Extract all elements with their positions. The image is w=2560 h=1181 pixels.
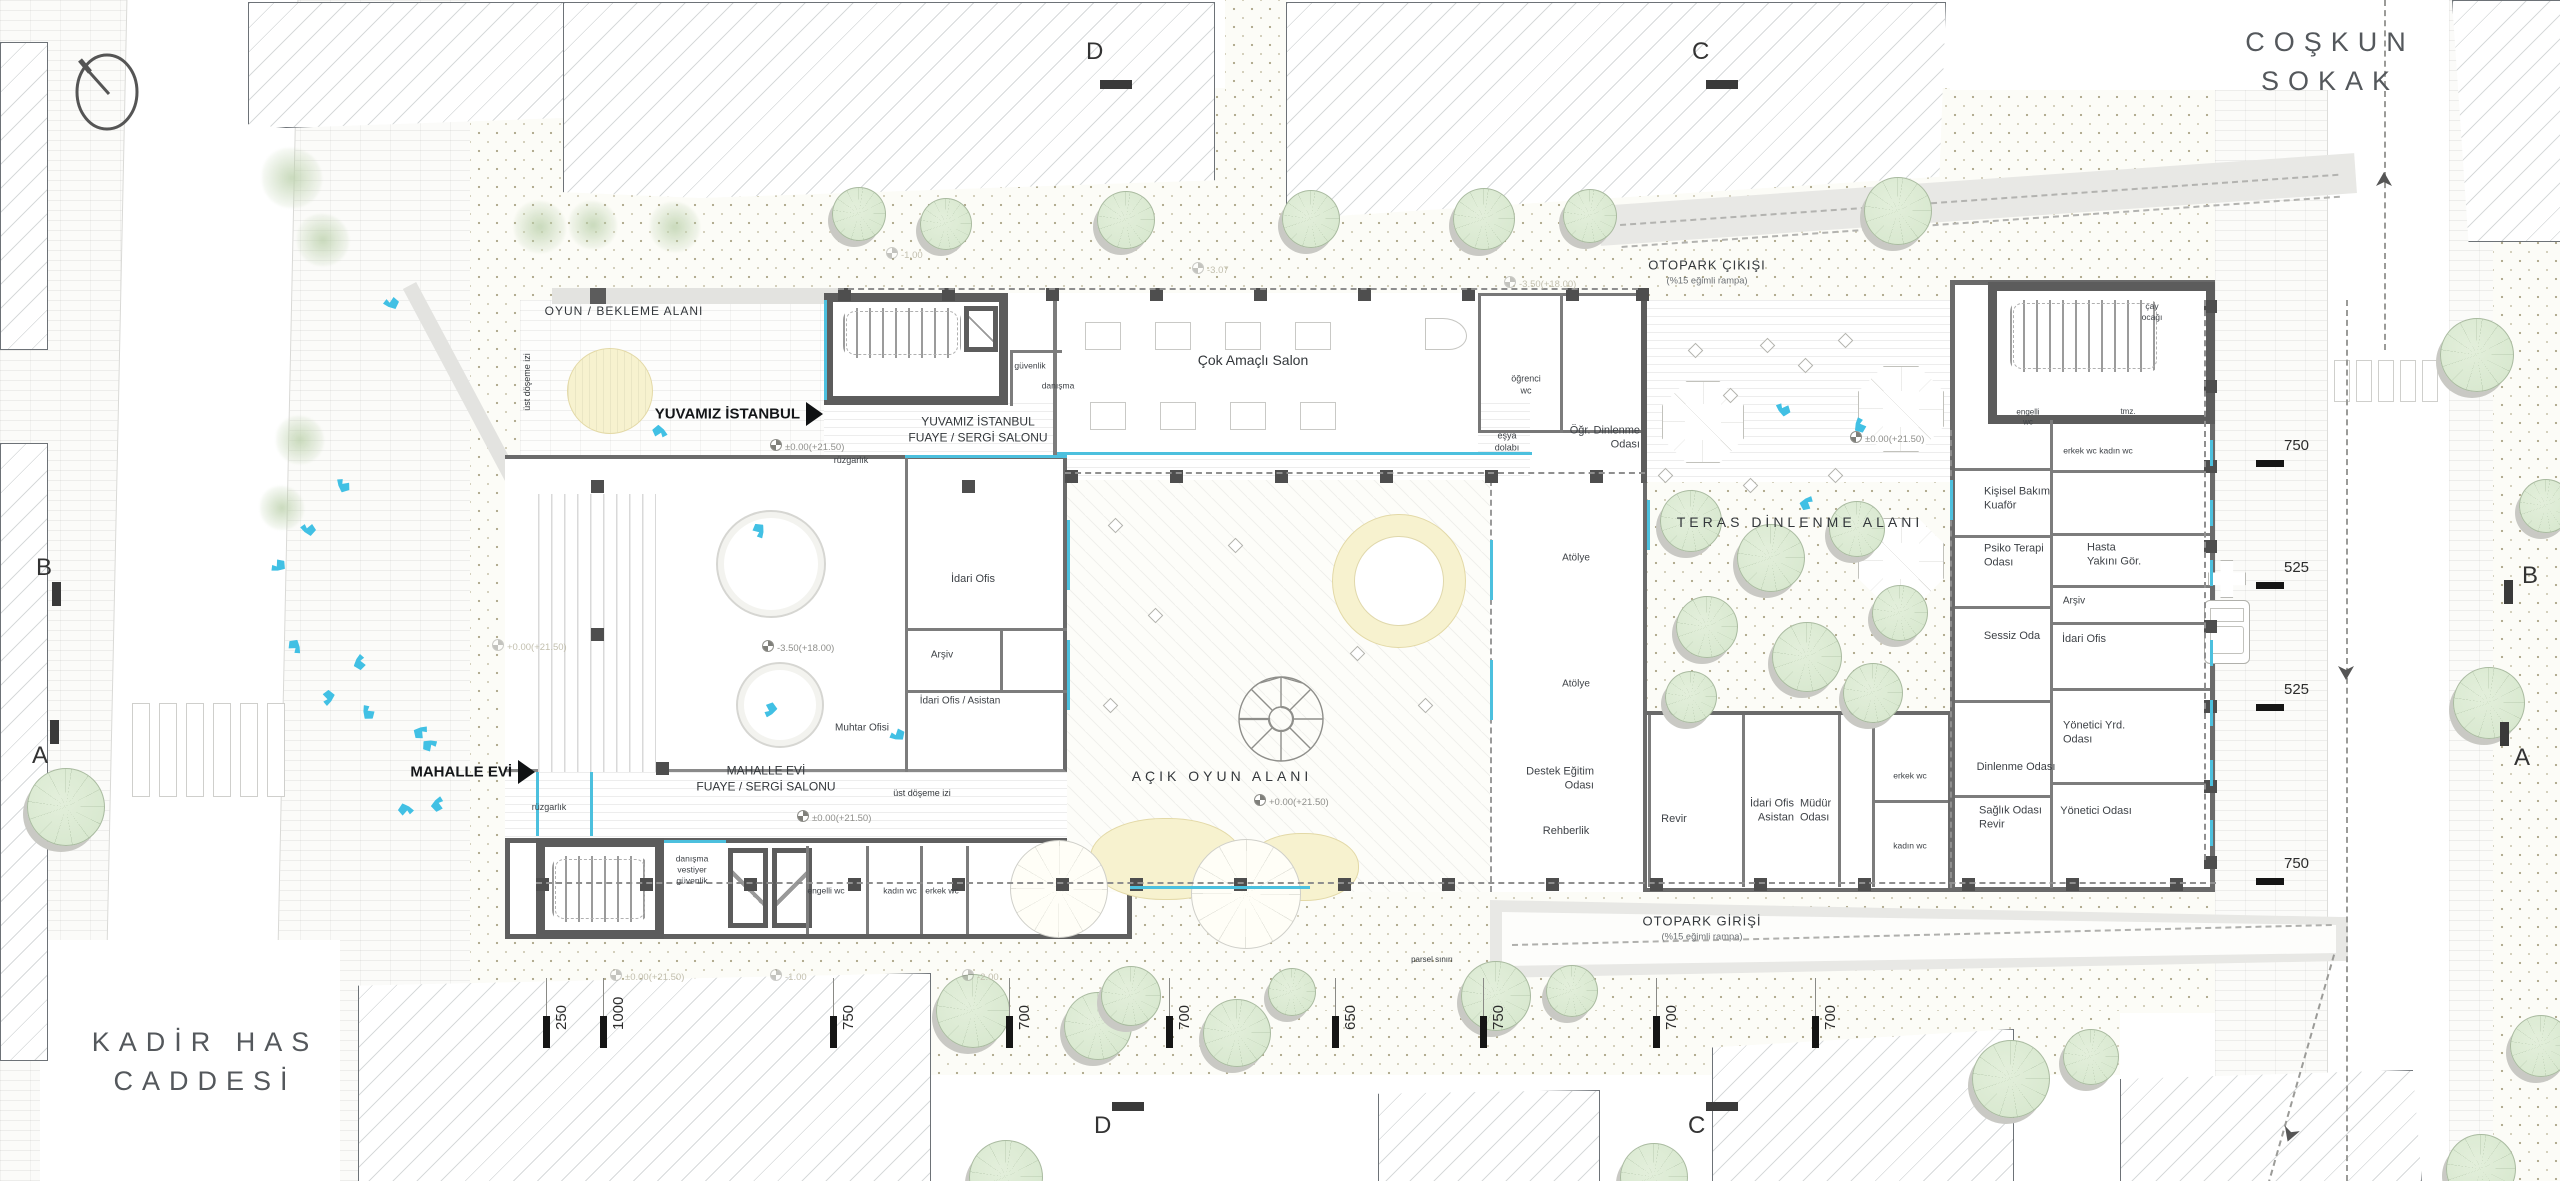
section-marker-bar xyxy=(1112,1102,1144,1111)
room-label: Revir xyxy=(1661,812,1687,826)
room-label: eşyadolabı xyxy=(1495,430,1520,453)
room-label: kadın wc xyxy=(2099,445,2133,456)
section-marker-bar xyxy=(52,582,61,606)
dimension-value: 750 xyxy=(840,1005,857,1030)
room-label: İdari Ofis / Asistan xyxy=(920,695,1001,708)
dimension-bar xyxy=(1332,1016,1339,1048)
elevation-mark: -2.00 xyxy=(962,969,999,983)
room-label: Arşiv xyxy=(2063,595,2085,608)
area-label: YUVAMIZ İSTANBULFUAYE / SERGİ SALONU xyxy=(908,414,1047,445)
room-label: erkek wc xyxy=(1893,770,1927,781)
dimension-value: 1000 xyxy=(610,997,627,1030)
dimension-value: 700 xyxy=(1016,1005,1033,1030)
elevation-mark: -3.50(+18.00) xyxy=(762,640,834,654)
section-marker-bar xyxy=(1706,1102,1738,1111)
dimension-bar xyxy=(2256,582,2284,589)
area-label: üst döşeme izi xyxy=(893,788,951,800)
dimension-bar xyxy=(1006,1016,1013,1048)
section-marker-d: D xyxy=(1094,1112,1111,1140)
section-marker-a: A xyxy=(2514,744,2530,772)
area-label: MAHALLE EVİFUAYE / SERGİ SALONU xyxy=(696,763,835,794)
room-label: danışma xyxy=(1042,380,1075,391)
room-label: Destek EğitimOdası xyxy=(1526,765,1594,794)
dimension-bar xyxy=(2256,878,2284,885)
room-label: çayocağı xyxy=(2142,301,2163,323)
dimension-value: 250 xyxy=(553,1005,570,1030)
dimension-bar xyxy=(2256,460,2284,467)
dimension-tick xyxy=(603,978,604,1016)
dimension-bar xyxy=(1480,1016,1487,1048)
area-label: parsel sınırı xyxy=(1411,955,1453,965)
room-label: rüzgarlık xyxy=(834,455,869,467)
dimension-tick xyxy=(1009,978,1010,1016)
dimension-value: 525 xyxy=(2284,559,2309,576)
area-label: üst döşeme izi xyxy=(522,353,534,411)
dimension-tick xyxy=(1169,978,1170,1016)
room-label: MüdürOdası xyxy=(1800,797,1831,826)
dimension-bar xyxy=(2256,704,2284,711)
dimension-value: 750 xyxy=(2284,437,2309,454)
entrance-label: MAHALLE EVİ xyxy=(410,762,512,782)
elevation-mark: +0.00(+21.50) xyxy=(1254,794,1329,808)
section-marker-c: C xyxy=(1692,38,1709,66)
dimension-bar xyxy=(1812,1016,1819,1048)
dimension-value: 700 xyxy=(1176,1005,1193,1030)
dimension-tick xyxy=(833,978,834,1016)
dimension-tick xyxy=(1656,978,1657,1016)
room-label: kadın wc xyxy=(1893,840,1927,851)
dimension-tick xyxy=(1335,978,1336,1016)
dimension-value: 750 xyxy=(1490,1005,1507,1030)
room-label: erkek wc xyxy=(2063,445,2097,456)
room-label: Muhtar Ofisi xyxy=(835,722,889,735)
elevation-mark: ±0.00(+21.50) xyxy=(770,439,844,453)
room-label: erkek wc xyxy=(925,885,959,896)
room-label: engelli wc xyxy=(807,885,844,896)
dimension-tick xyxy=(1483,978,1484,1016)
dimension-value: 700 xyxy=(1663,1005,1680,1030)
room-label: Arşiv xyxy=(931,649,953,662)
dimension-value: 750 xyxy=(2284,855,2309,872)
room-label: kadın wc xyxy=(883,885,917,896)
room-label: öğrenciwc xyxy=(1511,373,1541,396)
room-label: danışmavestiyergüvenlik xyxy=(676,853,709,886)
room-label: Öğr. DinlenmeOdası xyxy=(1570,424,1640,453)
elevation-mark: ±0.00(+21.50) xyxy=(1850,431,1924,445)
area-label: OTOPARK ÇIKIŞI(%15 eğimli rampa) xyxy=(1648,257,1766,286)
room-label: Yönetici Odası xyxy=(2060,804,2132,818)
room-label: İdari Ofis xyxy=(951,572,995,586)
room-label: güvenlik xyxy=(1014,360,1045,371)
room-label: Psiko TerapiOdası xyxy=(1984,542,2044,571)
dimension-bar xyxy=(1653,1016,1660,1048)
room-label: Sessiz Oda xyxy=(1984,629,2040,643)
elevation-mark: ±0.00(+21.50) xyxy=(797,810,871,824)
room-label: engelliwc xyxy=(2016,408,2039,429)
room-label: İdari OfisAsistan xyxy=(1750,797,1794,826)
dimension-tick xyxy=(1815,978,1816,1016)
dimension-value: 525 xyxy=(2284,681,2309,698)
section-marker-bar xyxy=(1706,80,1738,89)
area-label: OTOPARK GİRİŞİ(%15 eğimli rampa) xyxy=(1643,913,1762,942)
elevation-mark: -1.00 xyxy=(770,969,807,983)
room-label: Sağlık OdasıRevir xyxy=(1979,804,2042,833)
dimension-bar xyxy=(543,1016,550,1048)
room-label: rüzgarlık xyxy=(532,802,567,814)
room-label: Kişisel BakımKuaför xyxy=(1984,485,2050,514)
elevation-mark: +0.00(+21.50) xyxy=(492,639,567,653)
section-marker-bar xyxy=(2500,722,2509,746)
entrance-arrow-icon xyxy=(518,760,535,784)
dimension-bar xyxy=(1166,1016,1173,1048)
label-layer: OYUN / BEKLEME ALANITERAS DİNLENME ALANI… xyxy=(0,0,2560,1181)
room-label: İdari Ofis xyxy=(2062,632,2106,646)
elevation-mark: ±0.00(+21.50) xyxy=(610,969,684,983)
room-label: Rehberlik xyxy=(1543,824,1589,838)
site-plan: OYUN / BEKLEME ALANITERAS DİNLENME ALANI… xyxy=(0,0,2560,1181)
elevation-mark: -3.07 xyxy=(1192,262,1229,276)
entrance-label: YUVAMIZ İSTANBUL xyxy=(655,404,800,424)
section-marker-bar xyxy=(50,720,59,744)
elevation-mark: -3.50(+18.00) xyxy=(1504,276,1576,290)
room-label: Yönetici Yrd.Odası xyxy=(2063,719,2125,748)
section-marker-b: B xyxy=(2522,562,2538,590)
entrance-arrow-icon xyxy=(806,402,823,426)
room-label: Atölye xyxy=(1562,552,1590,565)
dimension-value: 700 xyxy=(1822,1005,1839,1030)
room-label: Atölye xyxy=(1562,678,1590,691)
dimension-tick xyxy=(546,978,547,1016)
section-marker-bar xyxy=(2504,580,2513,604)
room-label: tmz. xyxy=(2120,407,2135,417)
dimension-bar xyxy=(830,1016,837,1048)
section-marker-b: B xyxy=(36,554,52,582)
room-label: Dinlenme Odası xyxy=(1977,760,2056,774)
area-label: Çok Amaçlı Salon xyxy=(1198,351,1309,369)
street-name: COŞKUNSOKAK xyxy=(2245,23,2415,101)
section-marker-d: D xyxy=(1086,38,1103,66)
section-marker-a: A xyxy=(32,742,48,770)
section-marker-bar xyxy=(1100,80,1132,89)
area-label: TERAS DİNLENME ALANI xyxy=(1677,513,1924,531)
dimension-value: 650 xyxy=(1342,1005,1359,1030)
area-label: OYUN / BEKLEME ALANI xyxy=(545,304,704,320)
area-label: AÇIK OYUN ALANI xyxy=(1132,767,1313,785)
elevation-mark: -1.00 xyxy=(886,247,923,261)
section-marker-c: C xyxy=(1688,1112,1705,1140)
room-label: HastaYakını Gör. xyxy=(2087,541,2141,570)
street-name: KADİR HASCADDESİ xyxy=(92,1023,319,1101)
dimension-bar xyxy=(600,1016,607,1048)
